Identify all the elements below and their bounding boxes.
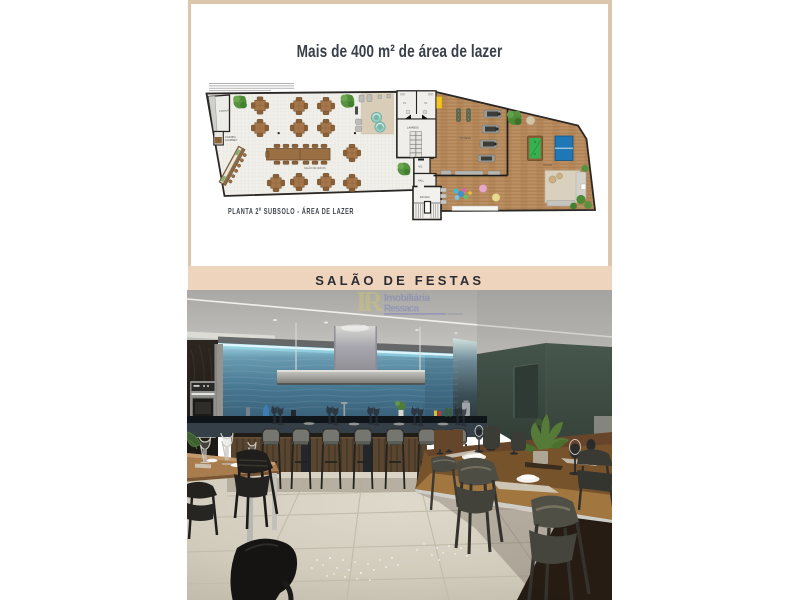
svg-text:Ressaca: Ressaca bbox=[384, 304, 419, 315]
svg-text:LAVABOS: LAVABOS bbox=[407, 126, 419, 130]
svg-text:Imobiliária: Imobiliária bbox=[384, 293, 430, 304]
svg-text:COZINHA: COZINHA bbox=[219, 108, 231, 113]
svg-text:I.S.: I.S. bbox=[403, 103, 407, 105]
svg-text:I.S.: I.S. bbox=[424, 103, 428, 105]
svg-text:WC: WC bbox=[419, 166, 423, 169]
svg-text:JOGOS: JOGOS bbox=[543, 163, 552, 167]
svg-text:SALÃO DE FESTAS: SALÃO DE FESTAS bbox=[304, 167, 326, 170]
svg-text:HALL: HALL bbox=[418, 180, 425, 183]
svg-text:IR: IR bbox=[356, 290, 384, 318]
svg-text:ESCADA: ESCADA bbox=[420, 196, 430, 199]
svg-text:FITNESS: FITNESS bbox=[460, 136, 471, 140]
svg-text:GOURMET: GOURMET bbox=[225, 139, 238, 142]
